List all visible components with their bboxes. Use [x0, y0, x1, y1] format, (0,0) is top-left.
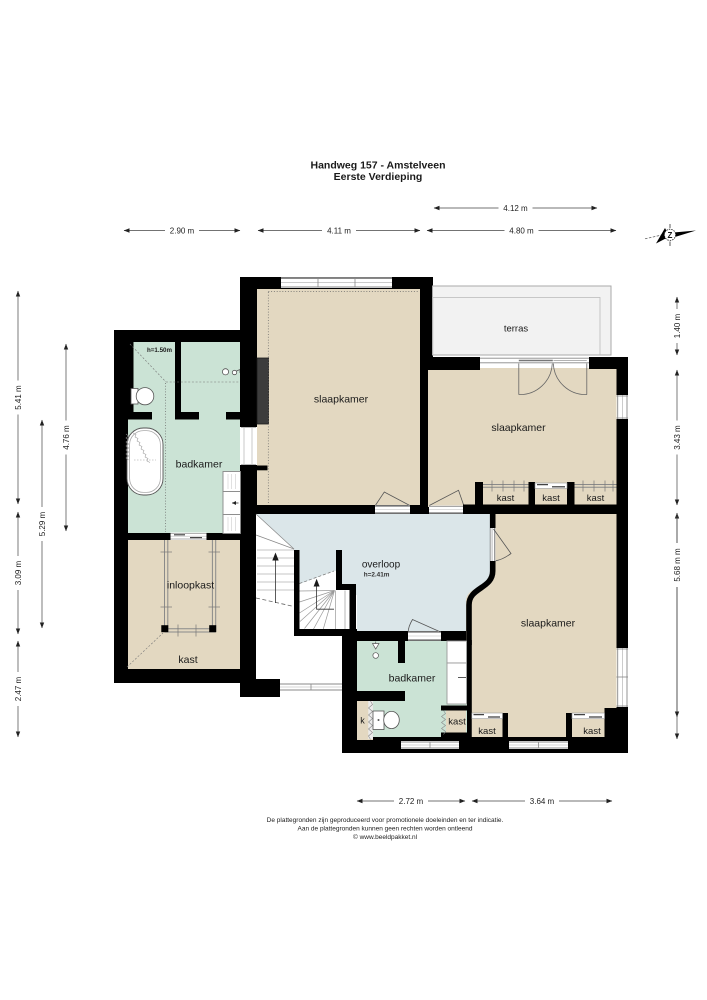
svg-text:kast: kast	[583, 726, 601, 737]
svg-text:inloopkast: inloopkast	[167, 580, 214, 592]
svg-text:4.76 m: 4.76 m	[62, 425, 71, 450]
svg-text:2.90 m: 2.90 m	[170, 226, 195, 235]
svg-text:h=2.41m: h=2.41m	[364, 572, 390, 579]
svg-text:4.80 m: 4.80 m	[509, 226, 534, 235]
svg-text:Aan de plattegronden kunnen ge: Aan de plattegronden kunnen geen rechten…	[298, 826, 473, 833]
svg-text:overloop: overloop	[362, 560, 401, 571]
svg-text:kast: kast	[448, 717, 466, 728]
svg-text:1.40 m: 1.40 m	[673, 313, 682, 338]
svg-text:Z: Z	[668, 231, 673, 240]
svg-text:kast: kast	[587, 493, 605, 504]
svg-text:h=1.50m: h=1.50m	[147, 347, 172, 354]
svg-text:slaapkamer: slaapkamer	[521, 618, 576, 630]
svg-text:Handweg 157 - Amstelveen: Handweg 157 - Amstelveen	[311, 160, 446, 172]
svg-text:5.41 m: 5.41 m	[14, 385, 23, 410]
svg-text:3.43 m: 3.43 m	[673, 425, 682, 450]
svg-text:kast: kast	[542, 493, 560, 504]
svg-text:badkamer: badkamer	[176, 459, 223, 471]
svg-text:slaapkamer: slaapkamer	[314, 394, 369, 406]
svg-text:3.64 m: 3.64 m	[530, 797, 555, 806]
svg-text:Eerste Verdieping: Eerste Verdieping	[334, 171, 423, 183]
svg-text:3.09 m: 3.09 m	[14, 560, 23, 585]
svg-text:2.72 m: 2.72 m	[399, 797, 424, 806]
svg-text:badkamer: badkamer	[389, 673, 436, 685]
svg-text:slaapkamer: slaapkamer	[491, 422, 546, 434]
svg-text:kast: kast	[478, 726, 496, 737]
svg-text:5.29 m: 5.29 m	[38, 511, 47, 536]
svg-text:terras: terras	[504, 324, 529, 335]
svg-text:kast: kast	[497, 493, 515, 504]
svg-text:4.11 m: 4.11 m	[327, 226, 351, 235]
svg-text:2.47 m: 2.47 m	[14, 676, 23, 701]
svg-text:4.12 m: 4.12 m	[503, 204, 528, 213]
svg-text:k: k	[360, 716, 365, 726]
svg-text:kast: kast	[178, 654, 197, 666]
svg-text:© www.beeldpakket.nl: © www.beeldpakket.nl	[353, 833, 418, 841]
svg-text:5.68 m m: 5.68 m m	[673, 548, 682, 582]
svg-text:De plattegronden zijn geproduc: De plattegronden zijn geproduceerd voor …	[267, 817, 504, 824]
